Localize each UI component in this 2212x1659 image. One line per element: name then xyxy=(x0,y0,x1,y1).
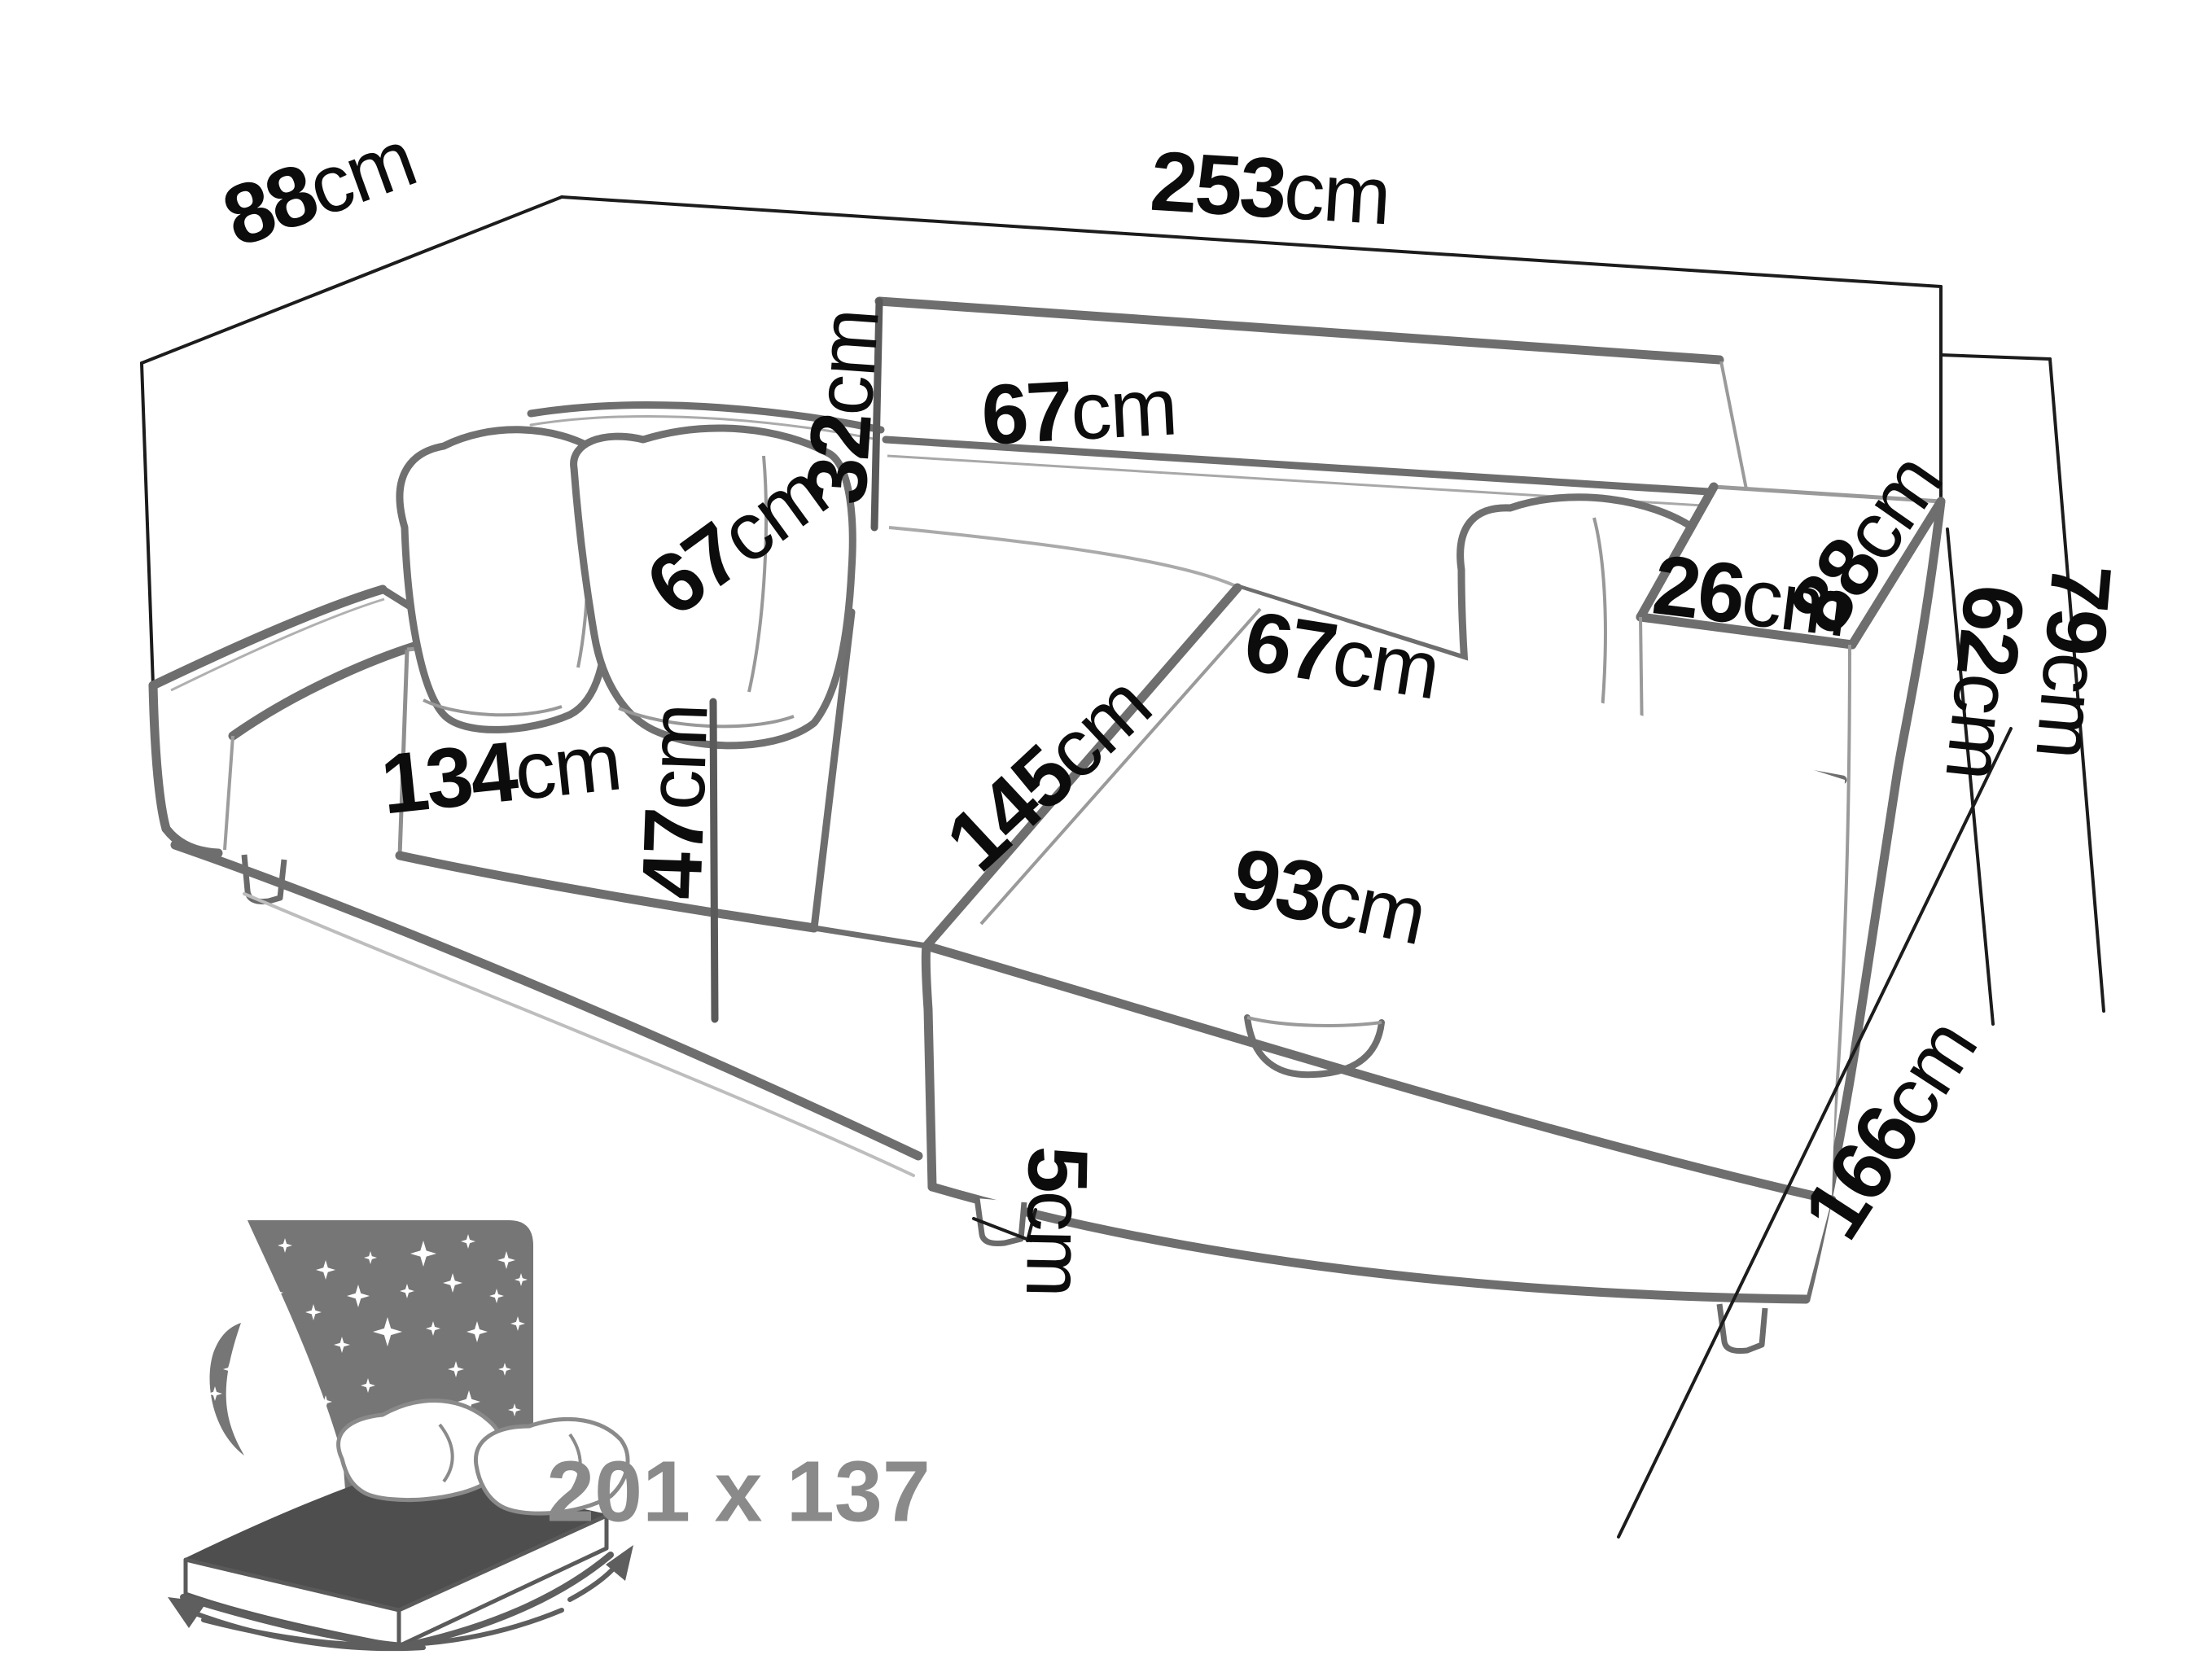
dim-total-width-value: 253 xyxy=(1148,134,1287,237)
dim-backrest-width: 67cm xyxy=(979,357,1179,464)
diagram-canvas: 253cm 88cm 32cm 67cm 67cm 134cm 26cm 88c… xyxy=(0,0,2212,1659)
dim-total-height: 79cm xyxy=(2016,560,2129,762)
sofa-bed-icon xyxy=(168,1220,633,1648)
sofa-line-drawing xyxy=(0,0,2212,1659)
arrow-left-icon xyxy=(168,1597,207,1628)
dim-seat-height: 47cm xyxy=(624,703,727,900)
dim-total-width: 253cm xyxy=(1148,134,1393,245)
bed-size-label: 201 x 137 xyxy=(546,1443,931,1542)
dim-leg-height: 5cm xyxy=(1006,1145,1106,1297)
arrow-right-icon xyxy=(606,1545,633,1581)
